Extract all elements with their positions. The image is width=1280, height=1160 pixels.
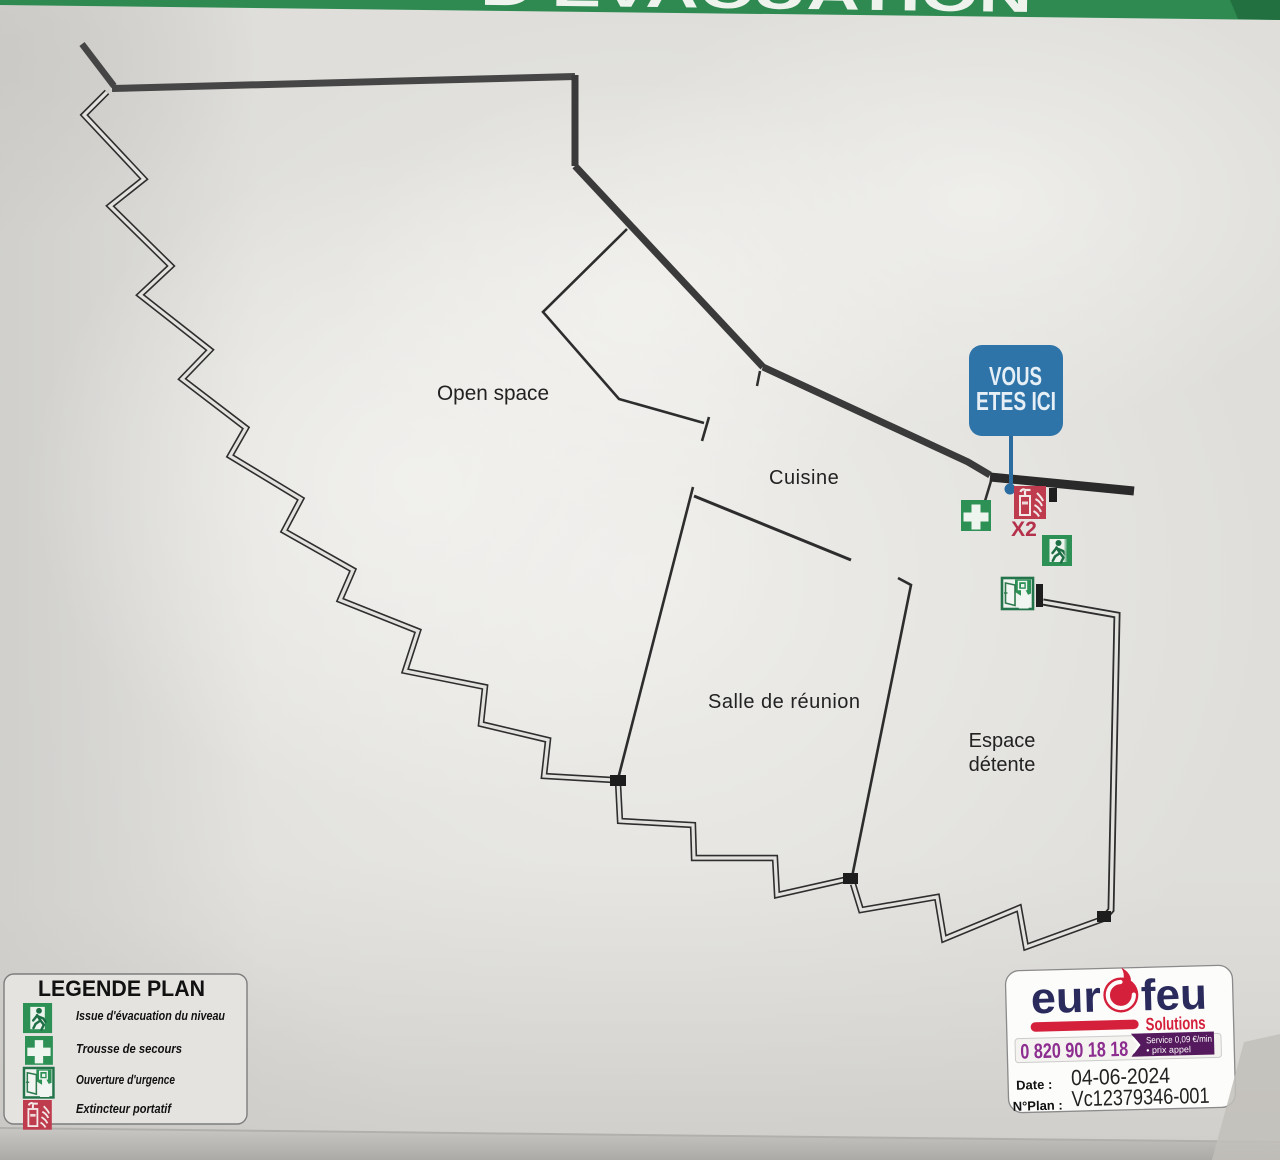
svg-text:Ouverture d'urgence: Ouverture d'urgence <box>76 1072 175 1087</box>
svg-text:Salle de réunion: Salle de réunion <box>708 691 861 713</box>
svg-text:LEGENDE PLAN: LEGENDE PLAN <box>38 976 205 1001</box>
svg-text:N°Plan :: N°Plan : <box>1013 1098 1063 1114</box>
svg-text:Cuisine: Cuisine <box>769 467 839 489</box>
svg-text:ETES ICI: ETES ICI <box>976 386 1056 416</box>
svg-text:Issue d'évacuation du niveau: Issue d'évacuation du niveau <box>76 1008 225 1023</box>
svg-text:0 820 90 18 18: 0 820 90 18 18 <box>1020 1038 1129 1064</box>
svg-text:Open space: Open space <box>437 381 549 405</box>
svg-text:Vc12379346-001: Vc12379346-001 <box>1071 1083 1210 1112</box>
svg-text:détente: détente <box>969 754 1036 776</box>
svg-text:Solutions: Solutions <box>1145 1013 1206 1035</box>
svg-text:Date :: Date : <box>1016 1077 1053 1093</box>
svg-text:• prix appel: • prix appel <box>1146 1044 1191 1055</box>
svg-text:Espace: Espace <box>969 730 1036 752</box>
svg-text:Extincteur portatif: Extincteur portatif <box>76 1101 172 1116</box>
svg-text:eur: eur <box>1030 972 1101 1023</box>
svg-text:X2: X2 <box>1011 518 1037 541</box>
svg-text:Trousse de secours: Trousse de secours <box>76 1041 182 1056</box>
